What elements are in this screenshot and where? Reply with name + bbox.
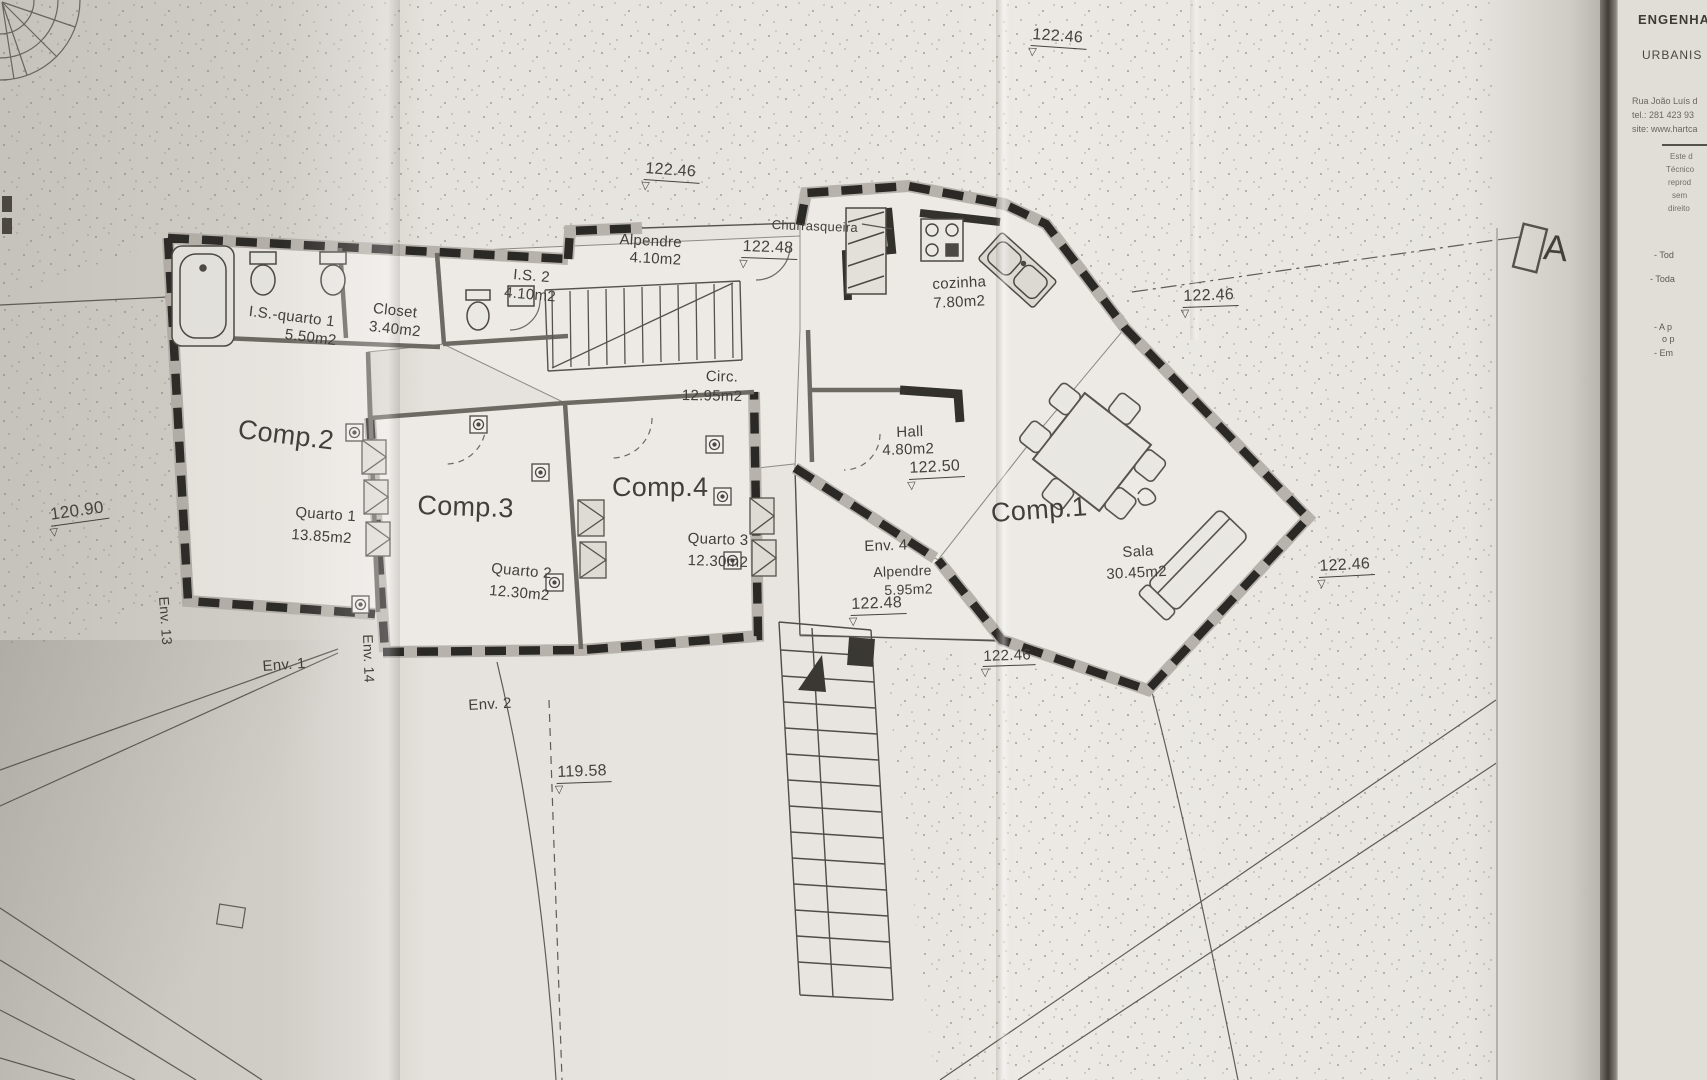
stairs-exterior xyxy=(779,622,893,1000)
elevation-marker: 122.46▽ xyxy=(1318,555,1375,578)
bidet-icon xyxy=(466,290,490,330)
titleblock-site: site: www.hartca xyxy=(1632,124,1698,134)
elevation-value: 122.50 xyxy=(908,457,965,480)
space-label-hall-name: Hall xyxy=(896,423,924,441)
elevation-marker: 122.46▽ xyxy=(982,646,1035,667)
space-label-hall-area: 4.80m2 xyxy=(882,440,934,459)
space-label-alpendre1-name: Alpendre xyxy=(619,231,682,251)
elevation-marker: 122.48▽ xyxy=(741,238,797,260)
room-label-comp3: Comp.3 xyxy=(417,490,514,524)
level-triangle-icon: ▽ xyxy=(849,615,858,628)
space-label-sala-name: Sala xyxy=(1122,542,1154,561)
titleblock-address: Rua João Luís d xyxy=(1632,96,1698,106)
titleblock-fineprint-3: reprod xyxy=(1668,178,1691,187)
level-triangle-icon: ▽ xyxy=(555,783,564,796)
space-label-cozinha-name: cozinha xyxy=(932,273,987,293)
env-label-env13: Env. 13 xyxy=(156,596,175,646)
titleblock-fineprint-1: Este d xyxy=(1670,152,1693,161)
level-triangle-icon: ▽ xyxy=(1317,577,1326,590)
space-label-circ-area: 12.95m2 xyxy=(682,387,743,405)
elevation-marker: 122.46▽ xyxy=(1031,26,1088,50)
space-label-cozinha-area: 7.80m2 xyxy=(933,292,986,312)
elevation-value: 122.48 xyxy=(741,238,797,260)
level-triangle-icon: ▽ xyxy=(907,479,916,492)
room-label-comp4: Comp.4 xyxy=(612,472,708,503)
titleblock-note-4: o p xyxy=(1662,334,1675,344)
titleblock-note-1: - Tod xyxy=(1654,250,1674,260)
space-label-alpendre2-name: Alpendre xyxy=(873,562,932,580)
space-label-quarto3-area: 12.30m2 xyxy=(687,552,748,571)
section-marker-letter: A xyxy=(1542,226,1571,270)
titleblock-note-2: - Toda xyxy=(1650,274,1675,284)
toilet-icon xyxy=(320,252,346,295)
elevation-marker: 119.58▽ xyxy=(556,762,611,784)
titleblock-fineprint-2: Técnico xyxy=(1666,165,1694,174)
elevation-value: 122.46 xyxy=(1182,286,1238,308)
titleblock-note-3: - A p xyxy=(1654,322,1672,332)
elevation-marker: 122.50▽ xyxy=(908,457,965,480)
title-block-sidebar: ENGENHA URBANIS Rua João Luís d tel.: 28… xyxy=(1618,0,1707,1080)
elevation-value: 119.58 xyxy=(556,762,611,784)
level-triangle-icon: ▽ xyxy=(49,525,59,539)
env-label-env2: Env. 2 xyxy=(468,695,512,714)
elevation-value: 122.48 xyxy=(850,594,906,616)
space-label-is2-name: I.S. 2 xyxy=(513,266,551,286)
space-label-churrasqueira: Churrasqueira xyxy=(771,217,858,235)
space-label-quarto3-name: Quarto 3 xyxy=(687,530,748,549)
elevation-marker: 122.46▽ xyxy=(1182,286,1238,308)
space-label-alpendre1-area: 4.10m2 xyxy=(629,249,682,269)
elevation-marker: 122.46▽ xyxy=(644,160,701,184)
floorplan-photo: Comp.2 Comp.3 Comp.4 Comp.1 I.S.-quarto … xyxy=(0,0,1707,1080)
titleblock-fineprint-4: sem xyxy=(1672,191,1687,200)
space-label-sala-area: 30.45m2 xyxy=(1106,563,1167,583)
env-label-env14: Env. 14 xyxy=(360,634,378,683)
titleblock-tel: tel.: 281 423 93 xyxy=(1632,110,1694,120)
elevation-value: 122.46 xyxy=(1318,555,1375,578)
env-label-env1: Env. 1 xyxy=(262,655,306,675)
elevation-value: 122.46 xyxy=(1031,26,1088,50)
level-triangle-icon: ▽ xyxy=(981,666,990,679)
titleblock-company-line1: ENGENHA xyxy=(1638,12,1707,27)
level-triangle-icon: ▽ xyxy=(641,179,651,193)
space-label-circ-name: Circ. xyxy=(706,368,739,386)
level-triangle-icon: ▽ xyxy=(1028,45,1038,59)
titleblock-company-line2: URBANIS xyxy=(1642,48,1702,62)
titleblock-fineprint-5: direito xyxy=(1668,204,1690,213)
level-triangle-icon: ▽ xyxy=(1181,307,1190,320)
env-label-env4: Env. 4 xyxy=(864,536,908,554)
elevation-marker: 122.48▽ xyxy=(850,594,906,616)
elevation-value: 122.46 xyxy=(644,160,701,184)
level-triangle-icon: ▽ xyxy=(739,257,748,270)
titleblock-rule xyxy=(1662,144,1707,146)
toilet-icon xyxy=(250,252,276,295)
floorplan-drawing xyxy=(0,0,1707,1080)
elevation-value: 122.46 xyxy=(982,646,1035,667)
stove-icon xyxy=(921,219,963,261)
titleblock-note-5: - Em xyxy=(1654,348,1673,358)
